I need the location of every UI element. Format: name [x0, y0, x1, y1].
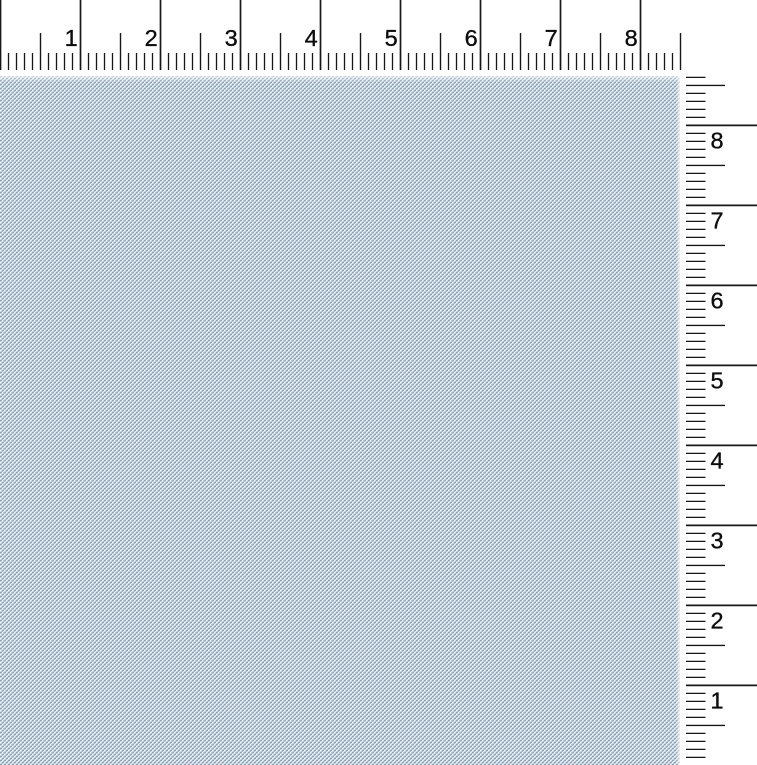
svg-text:2: 2: [145, 25, 158, 51]
svg-text:7: 7: [710, 207, 723, 233]
svg-text:5: 5: [385, 25, 398, 51]
svg-text:8: 8: [710, 127, 723, 153]
svg-text:4: 4: [305, 25, 318, 51]
svg-text:4: 4: [710, 447, 723, 473]
svg-text:1: 1: [65, 25, 78, 51]
svg-text:3: 3: [710, 527, 723, 553]
svg-text:1: 1: [710, 687, 723, 713]
svg-text:8: 8: [625, 25, 638, 51]
svg-text:5: 5: [710, 367, 723, 393]
svg-text:6: 6: [710, 287, 723, 313]
svg-text:6: 6: [465, 25, 478, 51]
svg-text:3: 3: [225, 25, 238, 51]
svg-text:2: 2: [710, 607, 723, 633]
svg-text:7: 7: [545, 25, 558, 51]
